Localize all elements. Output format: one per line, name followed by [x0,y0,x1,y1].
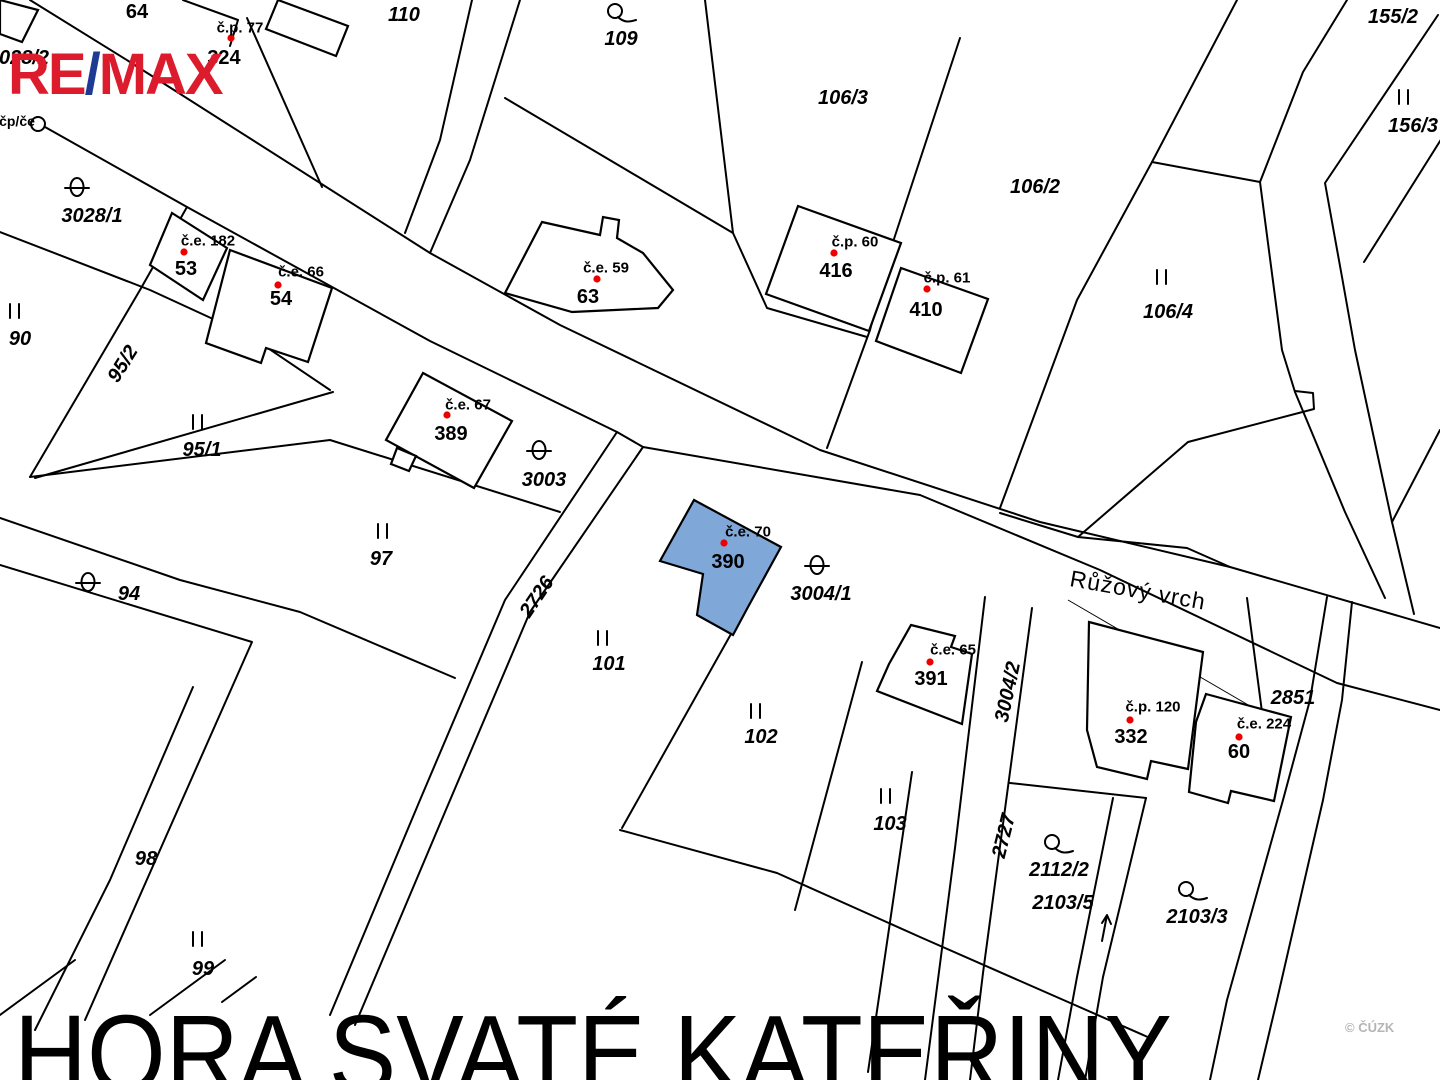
parcel-label: 54 [270,288,293,310]
parcel-label: 106/4 [1143,301,1193,323]
parcel-label: 389 [434,423,467,445]
logo-re: RE [8,46,85,104]
parcel-label: 98 [135,848,158,870]
parcel-label: 106/2 [1010,176,1060,198]
parcel-label: 109 [604,28,638,50]
meadow-icon [751,704,760,718]
parcel-label: 110 [388,4,420,26]
street-name-label: Růžový vrch [1068,565,1208,614]
parcel-label: 53 [175,258,197,280]
parcel-boundary-line [1078,391,1314,537]
parcel-label: 2727 [988,811,1021,861]
parcel-label: 3003 [522,469,567,491]
red-dot-icon [1235,733,1242,740]
meadow-icon [193,415,202,429]
building-outline [150,213,227,300]
meadow-icon [10,304,19,318]
cadastral-map-svg: 64č.p. 77324110109106/3155/2156/3028/2čp… [0,0,1440,1080]
parcel-boundary-line [505,98,733,233]
parcel-label: 410 [909,299,942,321]
parcel-label: 3028/1 [61,205,122,227]
parcel-label: 95/1 [183,439,222,461]
parcel-label: 97 [370,548,393,570]
parcel-boundary-line [622,634,731,828]
parcel-label: č.e. 59 [583,260,629,277]
theta-icon [805,556,829,574]
parcel-label: 99 [192,958,215,980]
meadow-icon [378,524,387,538]
circle-flag-icon [608,4,636,22]
parcel-boundary-line [0,565,252,1020]
locality-title: HORA SVATÉ KATEŘINY [14,993,1172,1080]
parcel-label: 156/3 [1388,115,1438,137]
parcel-label: č.e. 182 [181,233,235,250]
parcel-label: č.p. 120 [1125,699,1180,716]
slope-arrow-icon [1102,915,1111,941]
parcel-label: 63 [577,286,599,308]
parcel-boundary-line [35,392,333,478]
cadastral-map: 64č.p. 77324110109106/3155/2156/3028/2čp… [0,0,1440,1080]
parcel-label: 2851 [1270,687,1316,709]
parcel-boundary-line [355,447,643,1025]
parcel-label: 2103/5 [1031,892,1094,914]
theta-icon [65,178,89,196]
parcel-boundary-line [405,0,472,233]
red-dot-icon [926,658,933,665]
meadow-icon [1399,90,1408,104]
parcel-boundary-line [1247,598,1262,712]
parcel-label: čp/če [0,113,35,129]
parcel-label: 391 [914,668,947,690]
parcel-label: 103 [873,813,906,835]
land-use-symbols-layer [10,4,1408,946]
building-outline [266,0,348,56]
parcel-label: 60 [1228,741,1250,763]
theta-icon [527,441,551,459]
remax-logo: RE/MAX [8,46,222,104]
parcel-label: 2103/3 [1165,906,1227,928]
meadow-icon [1157,270,1166,284]
parcel-label: 2112/2 [1028,859,1089,881]
parcel-label: 390 [711,551,744,573]
parcel-label: 3004/1 [790,583,851,605]
parcel-label: č.e. 70 [725,524,771,541]
parcel-label: 64 [126,1,149,23]
parcel-label: č.p. 60 [832,234,879,251]
parcel-label: č.e. 224 [1237,716,1292,733]
parcel-label: 416 [819,260,852,282]
parcel-boundary-line [1010,783,1146,798]
logo-slash-icon: / [85,46,99,104]
meadow-icon [598,631,607,645]
parcel-label: 332 [1114,726,1147,748]
parcel-label: č.e. 67 [445,397,491,414]
parcel-boundary-line [1152,0,1260,182]
parcel-boundary-line [330,432,617,1015]
parcel-label: 90 [9,328,31,350]
parcel-label: 101 [592,653,625,675]
parcel-label: 155/2 [1368,6,1418,28]
parcel-boundary-line [1325,15,1438,614]
parcel-boundary-line [45,127,1440,710]
parcel-label: 106/3 [818,87,868,109]
parcel-boundary-line [1364,138,1440,262]
parcel-boundary-line [1260,0,1385,598]
buildings-layer [0,0,1291,803]
parcel-label: č.p. 77 [217,20,264,37]
building-outline [0,0,38,42]
parcel-boundary-line [0,518,455,678]
parcel-boundary-line [795,662,862,910]
cuzk-watermark: © ČÚZK [1345,1020,1395,1035]
parcel-label: 95/2 [103,342,142,387]
parcel-label: č.p. 61 [924,270,971,287]
parcel-labels-layer: 64č.p. 77324110109106/3155/2156/3028/2čp… [0,1,1438,980]
meadow-icon [881,789,890,803]
parcel-label: 94 [118,583,140,605]
parcel-boundary-line [1392,430,1440,522]
parcel-label: č.e. 65 [930,642,976,659]
parcel-label: č.e. 66 [278,264,324,281]
circle-flag-icon [1045,835,1073,853]
logo-max: MAX [99,46,222,104]
red-dot-icon [1126,716,1133,723]
parcel-label: 102 [744,726,777,748]
parcel-boundary-line [35,687,193,1030]
circle-flag-icon [1179,882,1207,900]
meadow-icon [193,932,202,946]
parcel-boundary-line [1000,162,1152,508]
